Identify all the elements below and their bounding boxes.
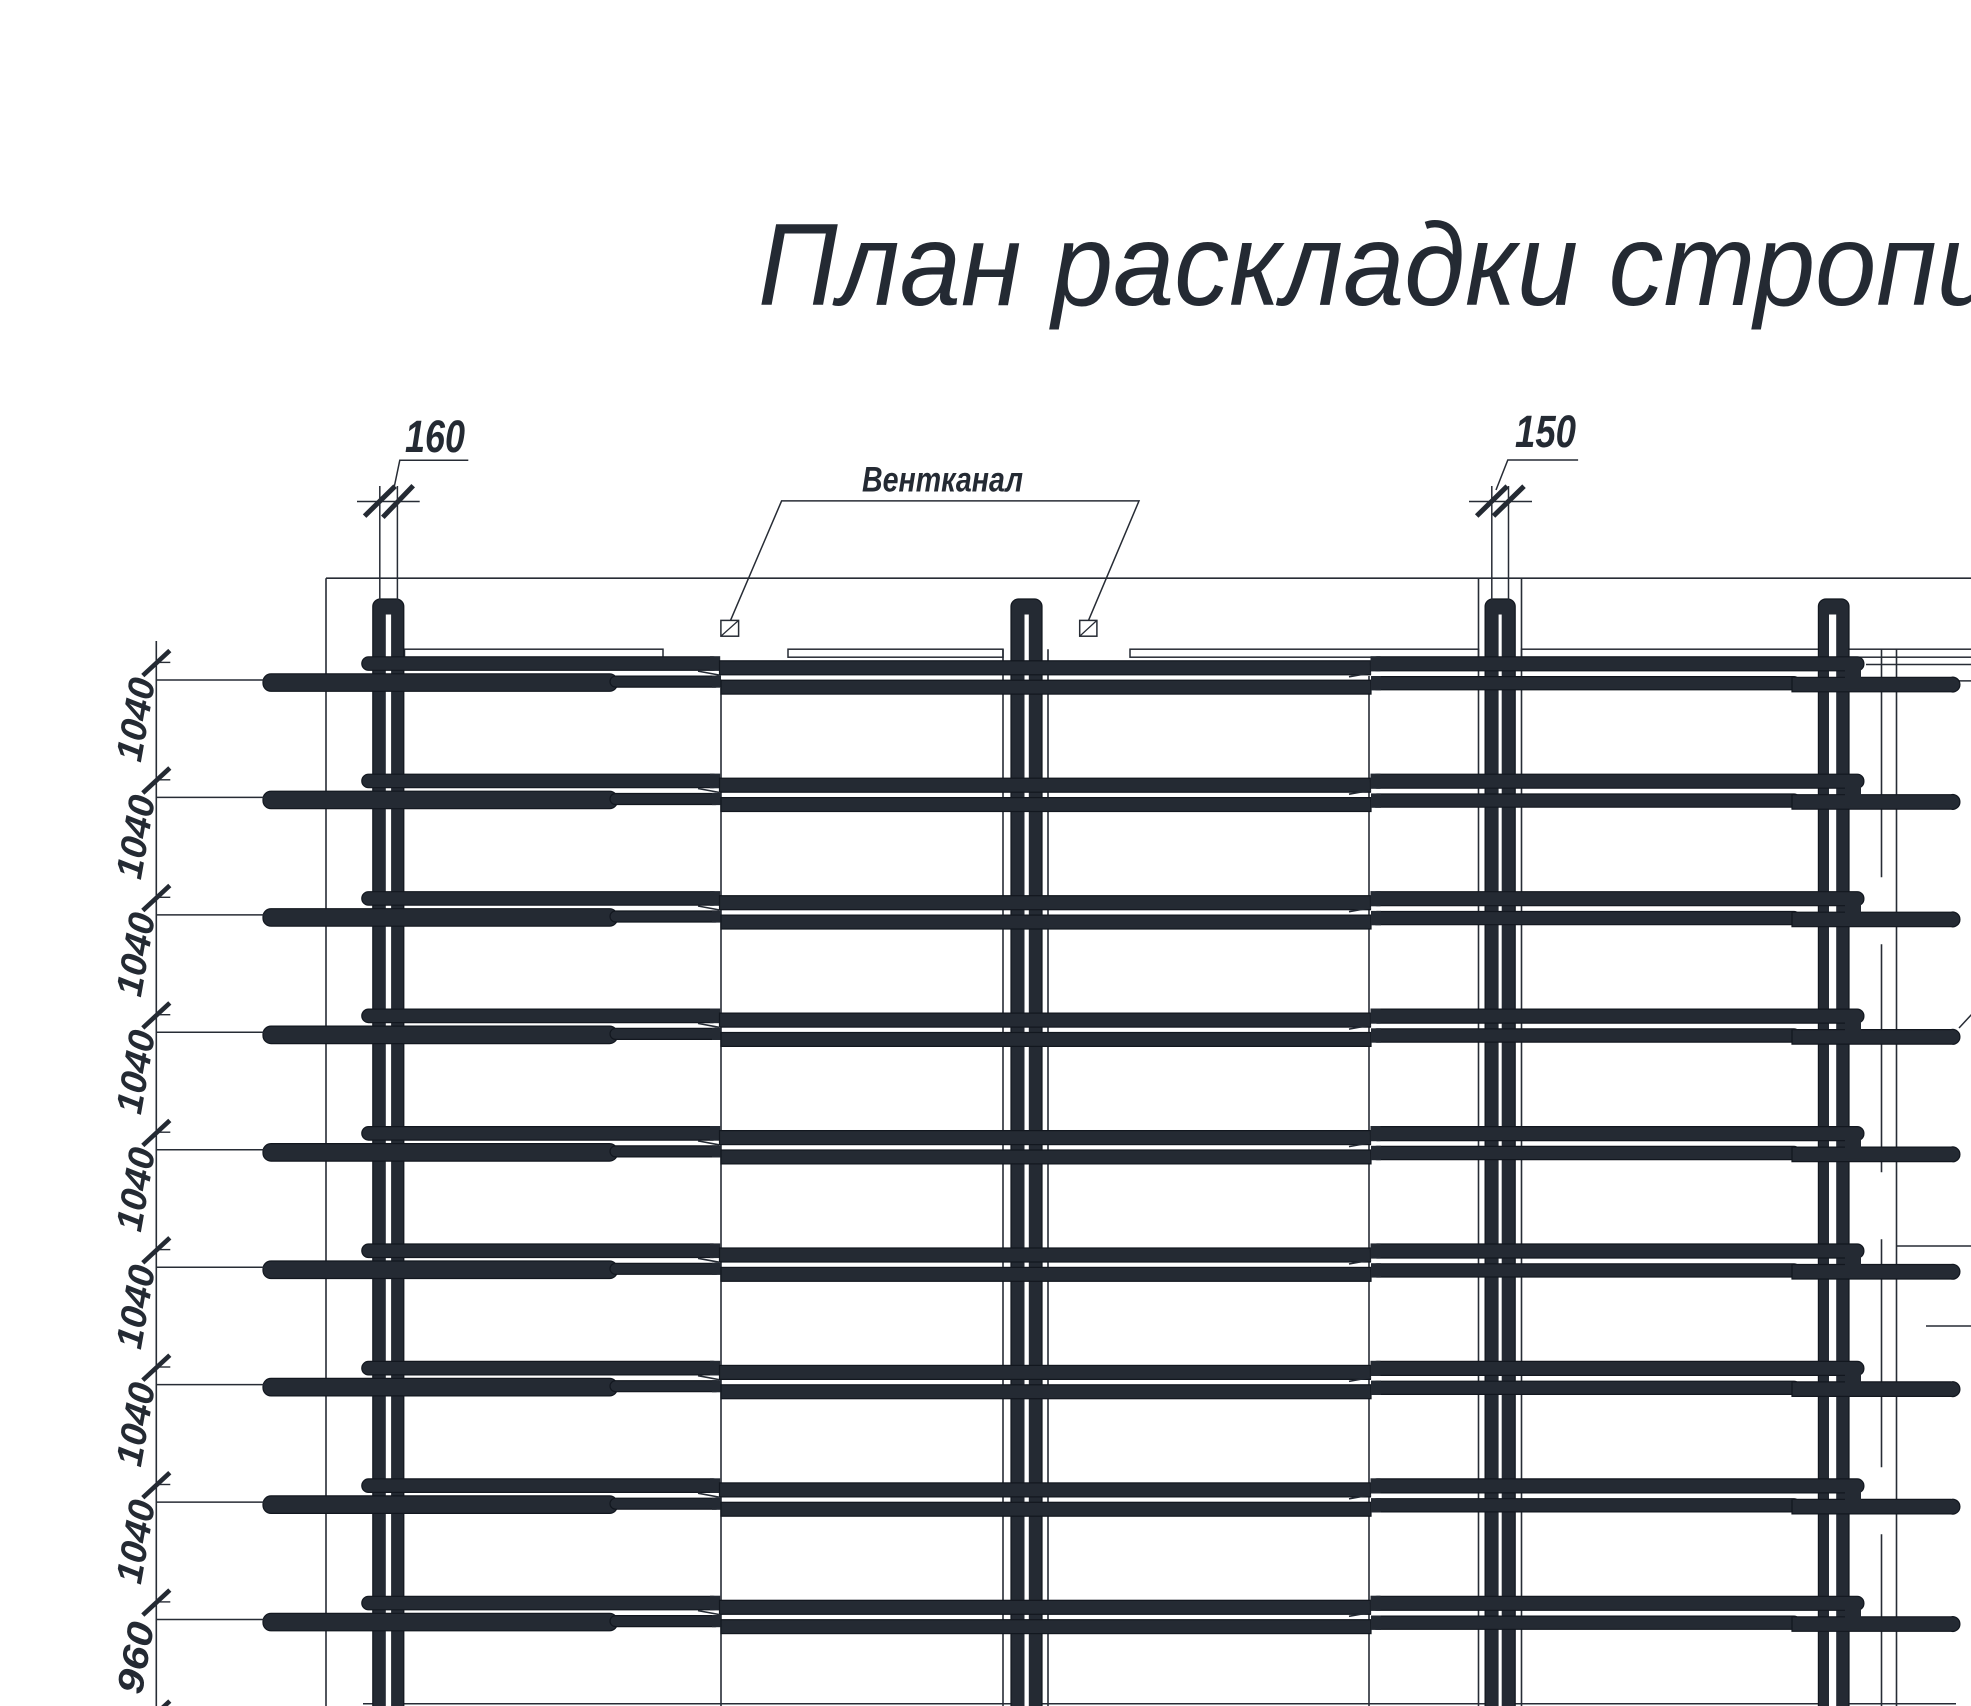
svg-text:План раскладки стропил: План раскладки стропил	[758, 199, 1971, 330]
svg-text:Вентканал: Вентканал	[862, 460, 1023, 500]
svg-text:150: 150	[1515, 406, 1576, 457]
svg-text:160: 160	[405, 411, 465, 462]
